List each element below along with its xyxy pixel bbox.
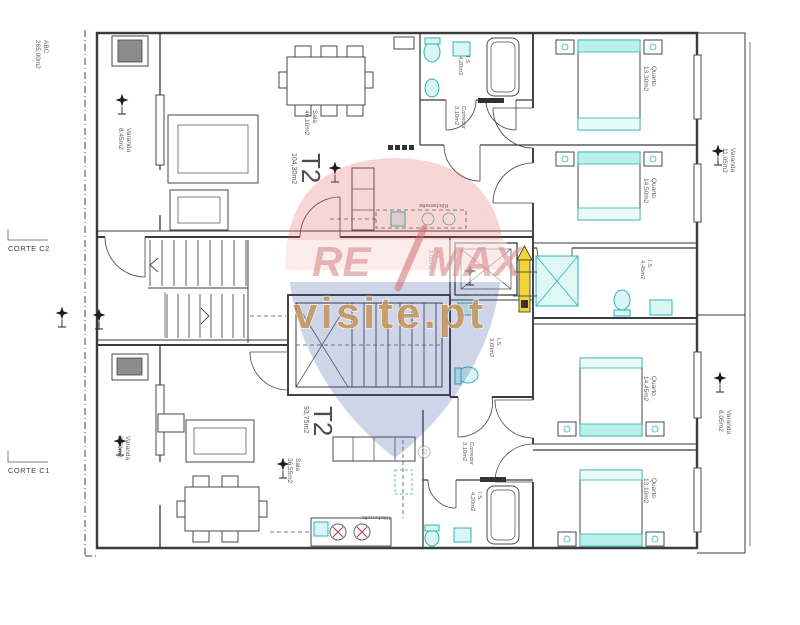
svg-text:46,10m2: 46,10m2 xyxy=(303,110,310,136)
svg-text:14,50m2: 14,50m2 xyxy=(642,178,649,204)
svg-text:93,75m2: 93,75m2 xyxy=(302,406,309,433)
label-corredor-top: Corredor3,10m2 xyxy=(453,106,466,129)
label-is-core: I.S.3,60m2 xyxy=(488,338,501,357)
window xyxy=(694,164,701,222)
nightstand xyxy=(646,422,664,436)
washbasin xyxy=(650,300,672,315)
remax-re: RE xyxy=(312,238,372,285)
svg-text:4,45m2: 4,45m2 xyxy=(639,260,645,279)
label-is2-top: I.S.4,45m2 xyxy=(639,260,652,279)
svg-text:Varanda: Varanda xyxy=(729,148,736,172)
fridge xyxy=(395,470,412,494)
corte-c2-label: CORTE C2 xyxy=(8,244,50,253)
label-unit-bottom: T293,75m2 xyxy=(302,406,338,436)
floor-plan: ABC 265,00m2 CORTE C2 CORTE C1 xyxy=(0,0,800,625)
sofa-set-bottom xyxy=(158,414,254,462)
bathroom-bottom xyxy=(425,477,519,546)
label-corredor-bottom: Corredor3,10m2 xyxy=(461,442,474,465)
nightstand xyxy=(558,532,576,546)
washbasin xyxy=(453,42,470,56)
label-kitchenette-bottom: Kitchenette xyxy=(361,514,390,520)
svg-text:13,10m2: 13,10m2 xyxy=(642,478,649,504)
bed-headboard xyxy=(578,40,640,52)
corte-c1-label: CORTE C1 xyxy=(8,466,50,475)
corte-c2-line xyxy=(8,229,48,240)
svg-text:Varanda: Varanda xyxy=(124,436,131,460)
bidet xyxy=(425,79,439,97)
label-is1-bottom: I.S.4,20m2 xyxy=(469,492,482,511)
bed-headboard xyxy=(580,534,642,546)
svg-text:I.S.: I.S. xyxy=(495,338,501,347)
level-marker-icon xyxy=(714,372,727,393)
label-sala-bottom: Sala36,55m2 xyxy=(286,458,301,484)
svg-text:T2: T2 xyxy=(296,153,326,183)
stair-flight-b xyxy=(165,292,286,338)
bed-headboard xyxy=(578,152,640,164)
label-varanda-left-top: Varanda8,45m2 xyxy=(117,128,132,152)
label-quarto1-top: Quarto13,30m2 xyxy=(642,66,657,92)
label-quarto2-bottom: Quarto13,10m2 xyxy=(642,478,657,504)
svg-text:3,60m2: 3,60m2 xyxy=(488,338,494,357)
svg-text:14,45m2: 14,45m2 xyxy=(642,376,649,402)
remax-max: MAX xyxy=(428,238,524,285)
kitchen-sink xyxy=(314,522,328,536)
svg-text:Corredor: Corredor xyxy=(468,442,474,465)
svg-text:Sala: Sala xyxy=(294,458,301,471)
label-unit-top: T2104,30m2 xyxy=(290,153,326,184)
nightstand xyxy=(556,152,574,166)
svg-text:Varanda: Varanda xyxy=(125,128,132,152)
svg-text:3,10m2: 3,10m2 xyxy=(453,106,459,125)
sofa-set xyxy=(168,115,258,230)
window xyxy=(694,352,701,418)
svg-text:Varanda: Varanda xyxy=(725,410,732,434)
svg-text:R: R xyxy=(422,448,428,457)
toilet xyxy=(614,290,630,310)
nightstand xyxy=(644,152,662,166)
washbasin xyxy=(454,528,471,542)
section-marks: CORTE C2 CORTE C1 xyxy=(8,229,50,475)
svg-text:Kitchenette: Kitchenette xyxy=(361,514,390,520)
label-quarto2-top: Quarto14,50m2 xyxy=(642,178,657,204)
window xyxy=(694,468,701,532)
toilet xyxy=(424,42,440,62)
svg-text:I.S.: I.S. xyxy=(464,56,470,65)
bed xyxy=(578,40,640,130)
nightstand xyxy=(646,532,664,546)
shaft-fill xyxy=(118,40,142,62)
duct xyxy=(394,37,414,49)
bathroom-top xyxy=(424,38,519,103)
label-sala-top: Sala46,10m2 xyxy=(303,110,318,136)
window xyxy=(694,55,701,119)
property-line: ABC 265,00m2 xyxy=(34,30,99,556)
shaft-fill xyxy=(117,358,142,375)
svg-text:I.S.: I.S. xyxy=(476,492,482,501)
svg-text:I.S.: I.S. xyxy=(646,260,652,269)
bathtub xyxy=(487,486,519,544)
svg-text:4,20m2: 4,20m2 xyxy=(457,56,463,75)
svg-text:T2: T2 xyxy=(308,406,338,436)
svg-text:36,55m2: 36,55m2 xyxy=(286,458,293,484)
svg-text:8,05m2: 8,05m2 xyxy=(717,410,724,432)
dining-table xyxy=(279,46,373,116)
svg-text:8,45m2: 8,45m2 xyxy=(117,128,124,150)
svg-text:Corredor: Corredor xyxy=(460,106,466,129)
bed-headboard xyxy=(580,424,642,436)
label-varanda-right-bottom: Varanda8,05m2 xyxy=(717,410,732,434)
svg-text:104,30m2: 104,30m2 xyxy=(290,153,297,184)
svg-text:3,10m2: 3,10m2 xyxy=(461,442,467,461)
bath-mat xyxy=(480,477,506,482)
svg-text:Quarto: Quarto xyxy=(650,178,657,198)
level-marker-icon xyxy=(93,309,106,330)
svg-text:13,30m2: 13,30m2 xyxy=(642,66,649,92)
bath-mat xyxy=(478,98,504,103)
nightstand xyxy=(644,40,662,54)
label-varanda-right-top: Varanda11,05m2 xyxy=(721,148,736,173)
vent-marks xyxy=(388,145,414,150)
label-quarto1-bottom: Quarto14,45m2 xyxy=(642,376,657,402)
svg-text:Quarto: Quarto xyxy=(650,66,657,86)
site-ref: ABC xyxy=(42,40,49,54)
site-ref-area: 265,00m2 xyxy=(34,40,41,69)
dining-table-bottom xyxy=(177,476,267,542)
label-is1-top: I.S.4,20m2 xyxy=(457,56,470,75)
registered-icon: R xyxy=(418,446,430,458)
toilet xyxy=(425,530,439,546)
floor-plan-drawing: ABC 265,00m2 CORTE C2 CORTE C1 xyxy=(0,0,800,625)
corte-c1-line xyxy=(8,451,48,462)
nightstand xyxy=(558,422,576,436)
bathtub xyxy=(487,38,519,96)
level-marker-icon xyxy=(116,94,129,115)
level-marker-icon xyxy=(56,307,69,328)
svg-text:4,20m2: 4,20m2 xyxy=(469,492,475,511)
svg-text:Quarto: Quarto xyxy=(650,376,657,396)
watermark-site: visite.pt xyxy=(293,289,486,338)
svg-text:Quarto: Quarto xyxy=(650,478,657,498)
nightstand xyxy=(556,40,574,54)
svg-text:Sala: Sala xyxy=(311,110,318,123)
window xyxy=(156,95,164,165)
stair-flight-a xyxy=(148,240,248,288)
